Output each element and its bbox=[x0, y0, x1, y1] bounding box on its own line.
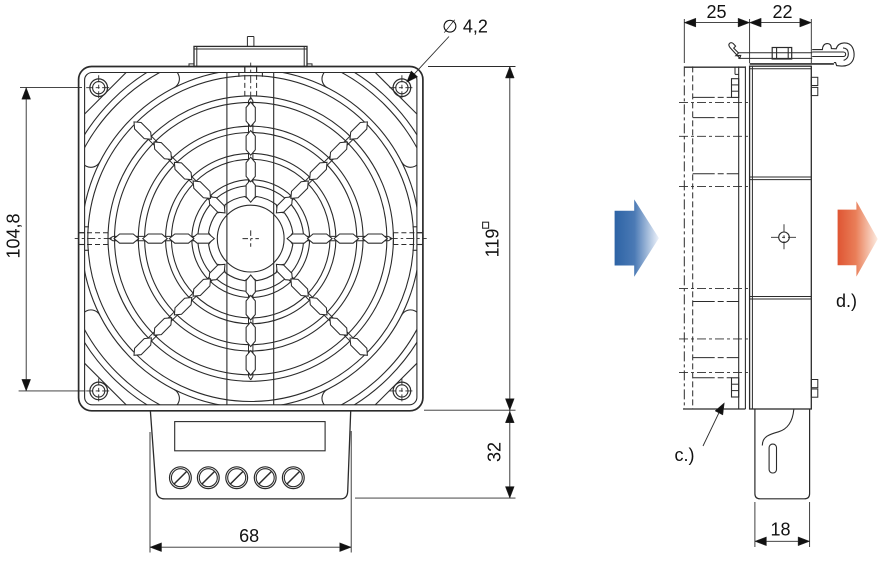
svg-text:119: 119 bbox=[483, 229, 503, 258]
svg-text:22: 22 bbox=[772, 2, 792, 22]
svg-text:104,8: 104,8 bbox=[4, 213, 24, 258]
svg-text:d.): d.) bbox=[836, 291, 857, 311]
svg-text:68: 68 bbox=[239, 526, 259, 546]
svg-text:25: 25 bbox=[706, 2, 726, 22]
svg-text:∅ 4,2: ∅ 4,2 bbox=[442, 17, 488, 37]
svg-text:18: 18 bbox=[770, 520, 790, 540]
svg-text:32: 32 bbox=[485, 442, 505, 462]
svg-text:c.): c.) bbox=[675, 445, 695, 465]
